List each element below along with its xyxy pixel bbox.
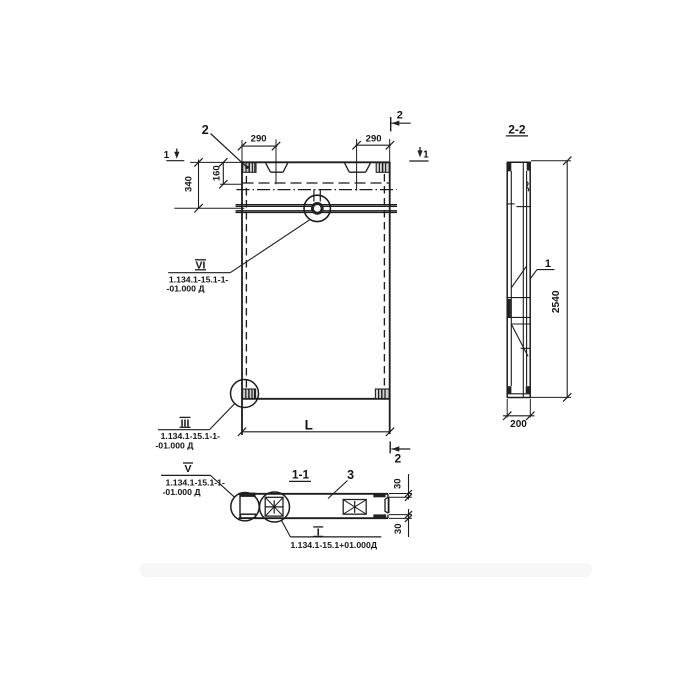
svg-text:3: 3 (347, 468, 354, 482)
svg-text:2: 2 (394, 452, 401, 466)
svg-text:340: 340 (184, 176, 195, 192)
svg-text:2540: 2540 (551, 290, 562, 313)
svg-text:200: 200 (510, 419, 527, 430)
svg-text:L: L (305, 418, 313, 433)
svg-text:-01.000 Д: -01.000 Д (167, 284, 206, 294)
svg-text:1: 1 (423, 149, 429, 160)
svg-text:1-1: 1-1 (292, 467, 310, 481)
svg-text:1: 1 (164, 150, 170, 161)
svg-text:290: 290 (251, 134, 267, 145)
svg-text:1: 1 (545, 258, 551, 270)
svg-text:2-2: 2-2 (508, 122, 526, 136)
svg-text:2: 2 (202, 123, 209, 137)
svg-text:30: 30 (393, 478, 404, 489)
svg-text:30: 30 (393, 524, 404, 535)
svg-text:2: 2 (397, 110, 403, 122)
svg-text:1.134.1-15.1+01.000Д: 1.134.1-15.1+01.000Д (290, 540, 377, 550)
svg-text:V: V (184, 463, 191, 475)
svg-text:-01.000 Д: -01.000 Д (155, 440, 194, 450)
svg-text:-01.000 Д: -01.000 Д (163, 487, 202, 497)
svg-text:160: 160 (211, 165, 222, 181)
svg-text:290: 290 (366, 134, 382, 145)
